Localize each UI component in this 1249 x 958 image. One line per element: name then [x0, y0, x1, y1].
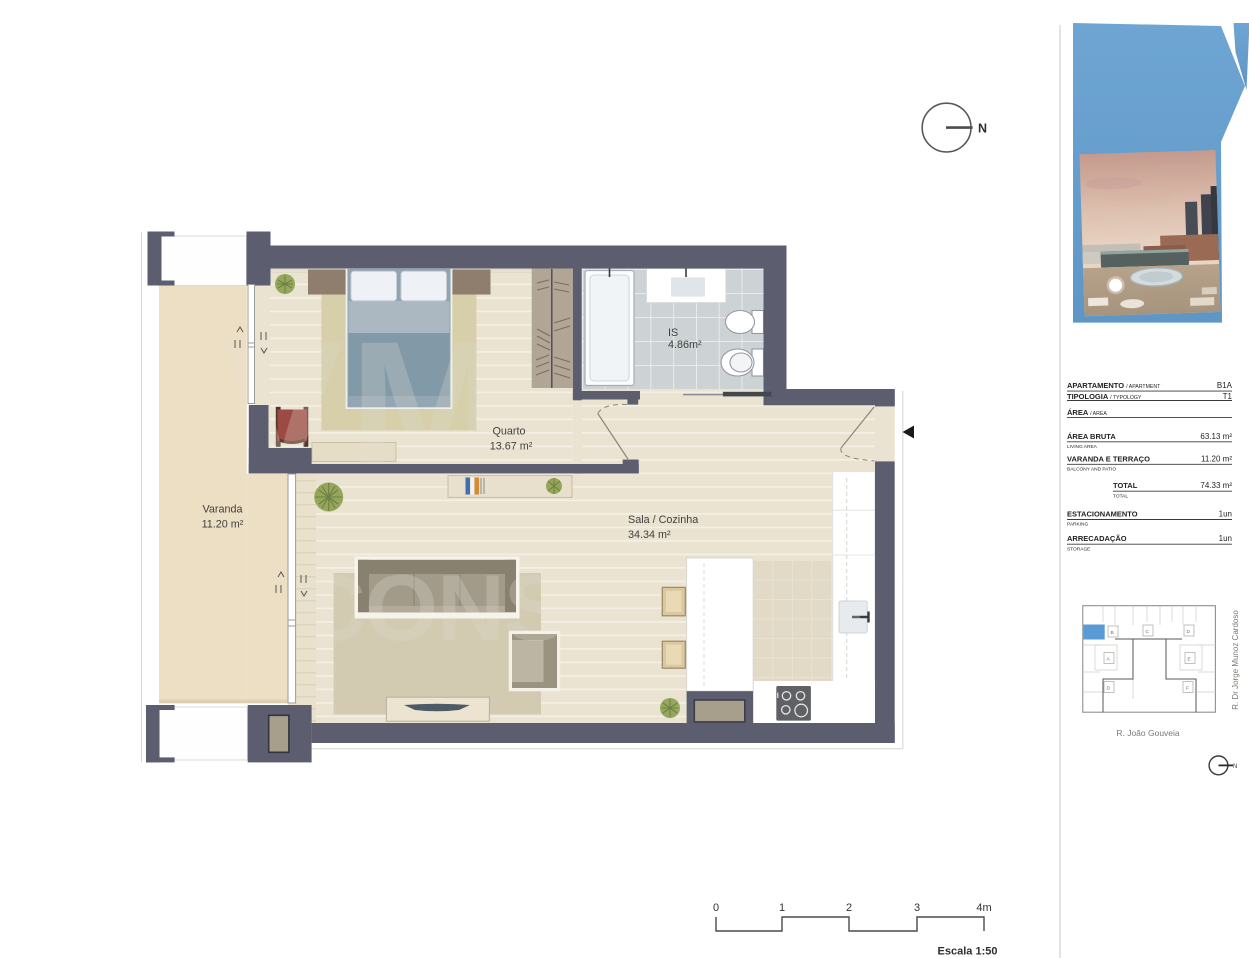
svg-text:TOTAL: TOTAL — [1113, 493, 1128, 499]
svg-text:F: F — [1186, 686, 1189, 692]
svg-text:1: 1 — [779, 902, 785, 914]
svg-text:LIVING AREA: LIVING AREA — [1067, 444, 1098, 450]
svg-text:34.34 m²: 34.34 m² — [628, 529, 671, 541]
svg-text:11.20 m²: 11.20 m² — [202, 519, 244, 531]
svg-text:Quarto: Quarto — [492, 426, 525, 438]
svg-text:N: N — [978, 122, 987, 136]
svg-text:PARKING: PARKING — [1067, 522, 1089, 528]
svg-text:D: D — [1107, 686, 1111, 692]
svg-text:13.67 m²: 13.67 m² — [490, 441, 533, 453]
svg-text:C: C — [1146, 629, 1150, 635]
svg-text:D: D — [1187, 629, 1191, 635]
svg-text:Escala 1:50: Escala 1:50 — [938, 946, 998, 958]
svg-text:ESTACIONAMENTO: ESTACIONAMENTO — [1067, 510, 1138, 519]
svg-text:Sala / Cozinha: Sala / Cozinha — [628, 514, 698, 526]
svg-text:IS: IS — [668, 327, 678, 339]
svg-text:R. Dr Jorge Munoz Cardoso: R. Dr Jorge Munoz Cardoso — [1231, 610, 1240, 710]
svg-text:T1: T1 — [1223, 392, 1233, 401]
svg-text:3: 3 — [914, 902, 920, 914]
svg-text:E: E — [1188, 657, 1191, 663]
svg-text:TOTAL: TOTAL — [1113, 481, 1138, 490]
svg-text:0: 0 — [713, 902, 719, 914]
svg-text:Varanda: Varanda — [202, 504, 242, 516]
svg-text:ÁREA BRUTA: ÁREA BRUTA — [1067, 432, 1116, 441]
svg-text:N: N — [1233, 764, 1237, 770]
svg-text:1un: 1un — [1219, 534, 1232, 543]
svg-text:2: 2 — [846, 902, 852, 914]
svg-text:4.86m²: 4.86m² — [668, 339, 702, 351]
svg-text:ARRECADAÇÃO: ARRECADAÇÃO — [1067, 534, 1127, 543]
svg-text:1un: 1un — [1219, 510, 1232, 519]
svg-text:B1A: B1A — [1217, 381, 1233, 390]
svg-text:74.33 m²: 74.33 m² — [1200, 481, 1232, 490]
svg-text:STORAGE: STORAGE — [1067, 546, 1090, 552]
svg-text:VARANDA E TERRAÇO: VARANDA E TERRAÇO — [1067, 454, 1150, 463]
svg-text:63.13 m²: 63.13 m² — [1200, 432, 1232, 441]
svg-text:B: B — [1111, 630, 1114, 636]
svg-text:4m: 4m — [976, 902, 991, 914]
svg-text:R. João Gouveia: R. João Gouveia — [1116, 728, 1180, 738]
svg-text:11.20 m²: 11.20 m² — [1201, 454, 1232, 463]
svg-text:BALCONY AND PATIO: BALCONY AND PATIO — [1067, 467, 1116, 473]
